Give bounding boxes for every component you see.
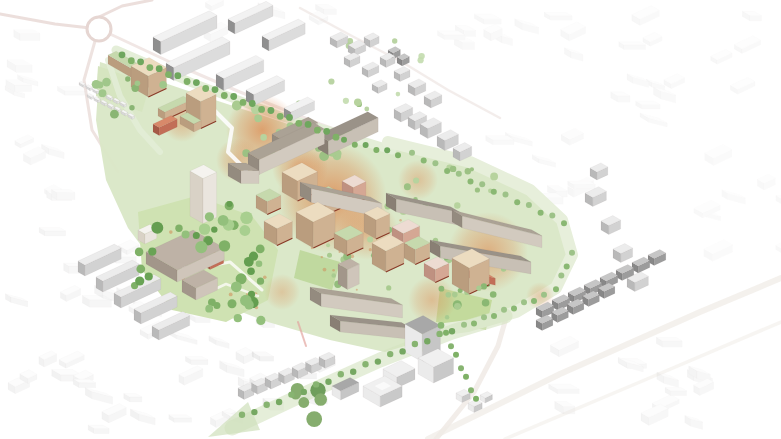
masterplan-canvas bbox=[0, 0, 781, 439]
street-tree bbox=[448, 343, 454, 349]
tree bbox=[125, 76, 130, 81]
street-tree bbox=[258, 106, 265, 113]
street-tree bbox=[473, 396, 479, 402]
street-tree bbox=[458, 365, 464, 371]
context-building-front bbox=[750, 16, 761, 21]
street-tree bbox=[384, 147, 390, 153]
tree bbox=[211, 226, 217, 232]
context-building-front bbox=[94, 429, 109, 434]
tree bbox=[227, 201, 233, 207]
building-side bbox=[190, 171, 203, 224]
tree bbox=[446, 292, 452, 298]
tree bbox=[193, 232, 200, 239]
street-tree bbox=[514, 199, 520, 205]
tree bbox=[399, 219, 401, 221]
street-tree bbox=[363, 142, 369, 148]
masterplan-illustration bbox=[0, 0, 781, 439]
street-tree bbox=[286, 114, 293, 121]
tree bbox=[490, 173, 498, 181]
tree bbox=[298, 397, 309, 408]
context-building-front bbox=[671, 391, 687, 396]
street-tree bbox=[456, 171, 462, 177]
tree bbox=[213, 302, 220, 309]
context-building-front bbox=[20, 33, 40, 40]
tree bbox=[392, 38, 397, 43]
context-building-front bbox=[642, 105, 660, 110]
tree bbox=[151, 222, 163, 234]
context-building-front bbox=[260, 357, 274, 362]
context-building-front bbox=[550, 16, 572, 20]
roundabout bbox=[87, 17, 111, 41]
context-building-front bbox=[463, 42, 475, 49]
street-tree bbox=[526, 202, 532, 208]
tree bbox=[418, 57, 424, 63]
tree bbox=[219, 240, 230, 251]
street-tree bbox=[443, 330, 449, 336]
street-tree bbox=[128, 57, 135, 64]
context-building-front bbox=[174, 418, 191, 422]
context-building-front bbox=[191, 360, 208, 365]
street-tree bbox=[463, 374, 469, 380]
street-tree bbox=[295, 120, 302, 127]
context-building-front bbox=[663, 341, 683, 347]
orange-plaza-highlight bbox=[264, 274, 300, 310]
context-cluster bbox=[15, 135, 75, 201]
tree bbox=[306, 411, 322, 427]
tree bbox=[256, 316, 265, 325]
tree bbox=[454, 303, 461, 310]
tree bbox=[438, 322, 445, 329]
tree bbox=[145, 272, 153, 280]
tree bbox=[321, 256, 323, 258]
tree bbox=[364, 107, 369, 112]
tree bbox=[481, 283, 487, 289]
street-tree bbox=[268, 107, 275, 114]
tree bbox=[332, 269, 335, 272]
street-tree bbox=[323, 128, 330, 135]
context-building-front bbox=[564, 406, 575, 414]
street-tree bbox=[521, 299, 527, 305]
tree bbox=[328, 78, 334, 84]
tree bbox=[102, 78, 111, 87]
tree bbox=[231, 281, 242, 292]
tree bbox=[476, 286, 481, 291]
context-building-front bbox=[130, 397, 142, 402]
tree bbox=[169, 230, 173, 234]
context-cluster bbox=[694, 144, 781, 261]
tree bbox=[205, 212, 214, 221]
street-tree bbox=[341, 137, 347, 143]
street-tree bbox=[147, 64, 154, 71]
street-tree bbox=[558, 273, 564, 279]
street-tree bbox=[174, 72, 181, 79]
tree bbox=[314, 393, 327, 406]
tree bbox=[99, 89, 107, 97]
tree bbox=[470, 167, 474, 171]
street-tree bbox=[301, 389, 307, 395]
tree bbox=[260, 134, 267, 141]
street-tree bbox=[553, 286, 559, 292]
roundabout bbox=[87, 17, 111, 41]
street-tree bbox=[156, 65, 163, 72]
tree bbox=[367, 236, 373, 242]
street-tree bbox=[409, 150, 415, 156]
street-tree bbox=[240, 99, 247, 106]
tree bbox=[229, 293, 233, 297]
street-tree bbox=[373, 147, 379, 153]
street-tree bbox=[165, 71, 172, 78]
tree bbox=[396, 92, 401, 97]
street-tree bbox=[479, 181, 485, 187]
street-tree bbox=[333, 134, 340, 141]
tree bbox=[445, 315, 449, 319]
tree bbox=[326, 243, 330, 247]
tree bbox=[454, 202, 460, 208]
street-tree bbox=[461, 322, 467, 328]
street-tree bbox=[202, 85, 209, 92]
street-tree bbox=[468, 387, 474, 393]
tree bbox=[135, 80, 141, 86]
street-tree bbox=[338, 371, 344, 377]
street-tree bbox=[453, 352, 459, 358]
tree bbox=[175, 225, 182, 232]
context-cluster bbox=[549, 336, 714, 429]
tree bbox=[257, 278, 264, 285]
street-tree bbox=[424, 338, 430, 344]
street-tree bbox=[436, 331, 442, 337]
street-tree bbox=[137, 58, 144, 65]
street-tree bbox=[538, 210, 544, 216]
tree bbox=[182, 230, 190, 238]
street-tree bbox=[541, 292, 547, 298]
street-tree bbox=[264, 402, 270, 408]
tree bbox=[439, 286, 445, 292]
context-building-front bbox=[624, 45, 646, 50]
tree bbox=[240, 225, 251, 236]
street-tree bbox=[395, 152, 401, 158]
tree bbox=[369, 248, 372, 251]
tree bbox=[354, 99, 362, 107]
street-tree bbox=[277, 113, 284, 120]
street-tree bbox=[212, 86, 219, 93]
street-tree bbox=[288, 391, 294, 397]
street-tree bbox=[184, 78, 191, 85]
tree bbox=[263, 275, 267, 279]
tree bbox=[218, 215, 229, 226]
street-tree bbox=[249, 100, 256, 107]
street-tree bbox=[276, 399, 282, 405]
tree bbox=[135, 276, 144, 285]
street-tree bbox=[251, 409, 257, 415]
street-tree bbox=[471, 320, 477, 326]
tree bbox=[331, 273, 336, 278]
tree bbox=[482, 299, 490, 307]
tree bbox=[110, 110, 119, 119]
street-tree bbox=[491, 189, 497, 195]
context-building-front bbox=[15, 85, 32, 92]
context-building-front bbox=[79, 383, 96, 388]
context-building-front bbox=[484, 19, 501, 24]
street-tree bbox=[564, 264, 570, 270]
tree bbox=[234, 314, 242, 322]
street-tree bbox=[569, 250, 575, 256]
street-tree bbox=[449, 328, 455, 334]
context-building-front bbox=[574, 184, 596, 188]
street-tree bbox=[412, 341, 418, 347]
tree bbox=[148, 248, 156, 256]
street-tree bbox=[481, 314, 487, 320]
street-tree bbox=[503, 192, 509, 198]
street-tree bbox=[491, 313, 497, 319]
tree bbox=[247, 268, 255, 276]
street-tree bbox=[239, 412, 245, 418]
context-building-front bbox=[445, 35, 465, 40]
tree bbox=[475, 187, 480, 192]
tree bbox=[256, 245, 265, 254]
context-cluster bbox=[5, 30, 87, 99]
tree bbox=[356, 289, 358, 291]
context-building-front bbox=[45, 231, 65, 236]
context-building-front bbox=[493, 140, 514, 145]
tree bbox=[327, 253, 332, 258]
street-tree bbox=[549, 213, 555, 219]
tree bbox=[244, 257, 254, 267]
street-tree bbox=[468, 178, 474, 184]
road bbox=[99, 0, 152, 17]
street-tree bbox=[352, 142, 358, 148]
street-tree bbox=[119, 51, 126, 58]
tree bbox=[386, 285, 391, 290]
tree bbox=[159, 81, 167, 89]
tree bbox=[136, 265, 145, 274]
tree bbox=[228, 299, 237, 308]
street-tree bbox=[305, 121, 312, 128]
context-building-front bbox=[558, 389, 580, 394]
context-building-front bbox=[324, 9, 336, 15]
context-cluster bbox=[438, 12, 573, 49]
tree bbox=[199, 223, 210, 234]
context-building-front bbox=[196, 317, 211, 322]
road bbox=[0, 14, 90, 28]
tree bbox=[452, 292, 458, 298]
street-tree bbox=[314, 127, 321, 134]
tree bbox=[205, 305, 213, 313]
context-building-front bbox=[65, 91, 87, 96]
street-tree bbox=[444, 168, 450, 174]
tree bbox=[404, 183, 411, 190]
tree bbox=[490, 291, 497, 298]
context-building-front bbox=[90, 300, 112, 308]
tree bbox=[256, 261, 263, 268]
street-tree bbox=[350, 369, 356, 375]
street-tree bbox=[501, 307, 507, 313]
tree bbox=[195, 241, 207, 253]
context-cluster bbox=[561, 6, 762, 128]
tree bbox=[413, 177, 419, 183]
street-tree bbox=[362, 361, 368, 367]
context-building-front bbox=[57, 193, 75, 200]
street-tree bbox=[399, 348, 405, 354]
street-tree bbox=[313, 381, 319, 387]
tree bbox=[450, 166, 456, 172]
context-building-front bbox=[464, 31, 476, 37]
street-tree bbox=[561, 220, 567, 226]
tree bbox=[240, 211, 253, 224]
street-tree bbox=[375, 358, 381, 364]
building-front bbox=[241, 171, 259, 184]
street-tree bbox=[511, 305, 517, 311]
street-tree bbox=[221, 92, 228, 99]
street-tree bbox=[230, 93, 237, 100]
street-tree bbox=[432, 160, 438, 166]
street-tree bbox=[387, 351, 393, 357]
street-tree bbox=[193, 79, 200, 86]
tree bbox=[343, 98, 349, 104]
tree bbox=[92, 80, 101, 89]
context-building-front bbox=[16, 65, 32, 72]
street-tree bbox=[531, 298, 537, 304]
tree bbox=[323, 268, 327, 272]
street-tree bbox=[421, 157, 427, 163]
tree bbox=[135, 248, 144, 257]
context-building-front bbox=[618, 96, 630, 102]
tree bbox=[240, 295, 252, 307]
tree bbox=[254, 114, 262, 122]
street-tree bbox=[325, 379, 331, 385]
tree bbox=[129, 105, 134, 110]
